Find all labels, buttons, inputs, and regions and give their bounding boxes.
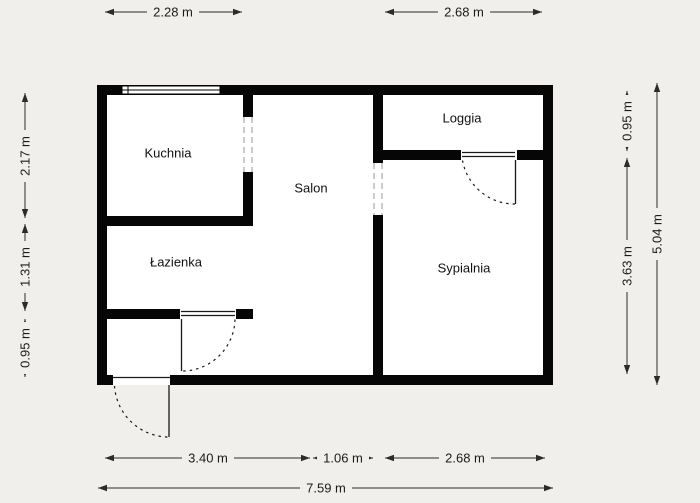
- dimension-label: 0.95 m: [18, 328, 33, 368]
- wall-lazienka-bottom-left: [107, 309, 180, 319]
- dimension-label: 5.04 m: [650, 214, 665, 254]
- dimension-label: 2.28 m: [153, 5, 193, 20]
- kuchnia-window: [122, 86, 220, 94]
- room-label-sypialnia: Sypialnia: [438, 261, 492, 276]
- floor-plan-svg: Kuchnia Salon Loggia Łazienka Sypialnia …: [0, 0, 700, 503]
- dimension-label: 2.68 m: [444, 5, 484, 20]
- room-label-lazienka: Łazienka: [150, 255, 203, 270]
- wall-kuchnia-lazienka: [107, 216, 253, 226]
- wall-exterior-left: [97, 85, 107, 385]
- dimension-label: 3.63 m: [620, 246, 635, 286]
- room-label-kuchnia: Kuchnia: [145, 146, 193, 161]
- dimension-right-loggia: 0.95 m: [619, 91, 635, 151]
- dimension-right-sypialnia: 3.63 m: [619, 158, 635, 374]
- wall-salon-sypialnia-upper: [373, 95, 383, 163]
- wall-loggia-right: [517, 150, 543, 160]
- dimension-label: 1.31 m: [18, 247, 33, 287]
- wall-exterior-right: [543, 85, 553, 385]
- wall-exterior-bottom-left-stub: [97, 375, 113, 385]
- dimension-label: 7.59 m: [306, 481, 346, 496]
- dimension-right-total: 5.04 m: [649, 83, 665, 385]
- dimension-bottom-total: 7.59 m: [98, 480, 553, 496]
- dimension-bottom-salon: 3.40 m: [105, 450, 310, 466]
- wall-exterior-bottom: [170, 375, 553, 385]
- dimension-left-hall: 0.95 m: [17, 319, 33, 377]
- room-label-salon: Salon: [294, 181, 327, 196]
- dimension-top-loggia: 2.68 m: [385, 4, 542, 20]
- dimension-label: 0.95 m: [620, 101, 635, 141]
- wall-salon-sypialnia-lower: [373, 215, 383, 375]
- room-label-loggia: Loggia: [442, 111, 482, 126]
- dimension-top-kuchnia: 2.28 m: [105, 4, 242, 20]
- dimension-label: 2.68 m: [445, 451, 485, 466]
- wall-lazienka-bottom-right: [236, 309, 253, 319]
- dimension-left-kuchnia: 2.17 m: [17, 93, 33, 218]
- dimension-label: 3.40 m: [188, 451, 228, 466]
- wall-loggia-left: [383, 150, 461, 160]
- dimension-left-lazienka: 1.31 m: [17, 224, 33, 311]
- door-entrance: [113, 378, 170, 438]
- dimension-label: 2.17 m: [18, 136, 33, 176]
- door-swing-arc: [115, 386, 169, 437]
- dimension-label: 1.06 m: [323, 451, 363, 466]
- wall-kuchnia-salon-upper: [243, 95, 253, 117]
- floor-plan-canvas: Kuchnia Salon Loggia Łazienka Sypialnia …: [0, 0, 700, 503]
- dimension-bottom-wall: 1.06 m: [313, 450, 373, 466]
- dimension-bottom-sypialnia: 2.68 m: [385, 450, 545, 466]
- floor-area: [97, 85, 553, 385]
